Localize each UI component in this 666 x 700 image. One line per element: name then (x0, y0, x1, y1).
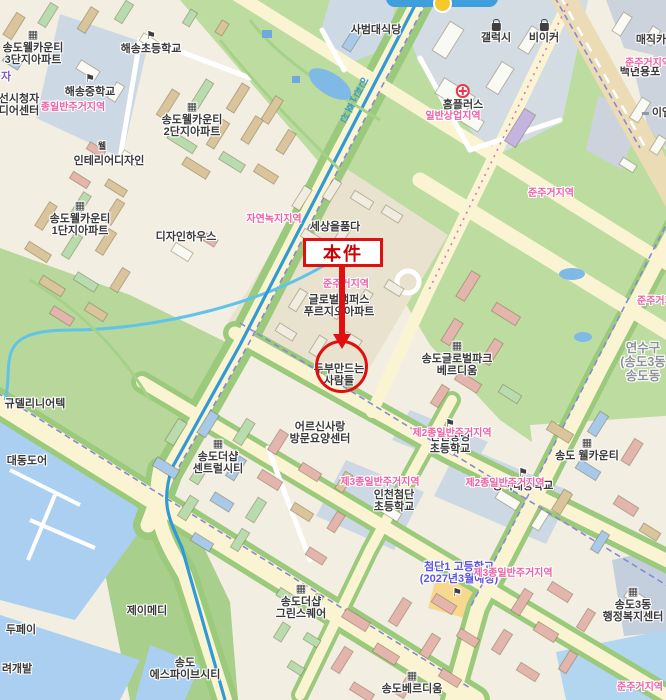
map-label-poi[interactable]: 송도웰카운티3단지아파트 (3, 30, 64, 67)
map-label-poi[interactable]: 송도 웰카운티 (555, 438, 619, 462)
map-label-poi[interactable]: 려개발 (2, 663, 32, 675)
map-label-zone: 종일반주거지역 (41, 102, 105, 113)
map-label-poi[interactable]: 선시청자디어센터 (0, 93, 39, 118)
map-label-zone: 일반상업지역 (425, 111, 480, 122)
bag-icon (492, 23, 501, 31)
building-icon (50, 201, 111, 212)
map-label-poi[interactable]: 비이커 (529, 23, 559, 44)
map-label-transit: 인천1호선 (335, 74, 369, 124)
map-label-poi[interactable]: 규델리니어텍 (5, 398, 66, 410)
map-label-zone: 제2종일반주거지역 (465, 478, 544, 489)
map-label-poi[interactable] (452, 588, 462, 600)
map-label-zone: 제3종일반주거지역 (340, 477, 419, 488)
map-label-poi[interactable]: 제이메디 (127, 605, 167, 617)
building-icon (422, 341, 493, 352)
map-label-poi[interactable]: 송도베르디움 (382, 671, 443, 695)
annotation-target-box: 本件 (303, 238, 383, 267)
map-label-zone: 준주거지역 (617, 682, 663, 693)
map-label-district: 연수구(송도3동송도동 (620, 341, 666, 383)
homeplus-icon (456, 84, 470, 98)
school-icon (65, 74, 116, 85)
building-icon (193, 439, 244, 450)
map-label-fragment: 자 (1, 71, 11, 83)
map-label-zone: 제2종일반주거지역 (412, 428, 491, 439)
building-icon (162, 102, 223, 113)
map-label-poi[interactable]: 디자인하우스 (156, 231, 217, 243)
building-icon (276, 584, 327, 595)
map-label-zone: 준주거지역 (323, 279, 369, 290)
building-icon (3, 30, 64, 41)
map-label-poi[interactable]: 인천첨단초등학교 (374, 489, 414, 514)
map-label-zone: 준주거지역 (528, 188, 574, 199)
map-label-poi[interactable]: 송도글로벌파크베르디움 (422, 341, 493, 378)
map-label-poi[interactable]: 어르신사랑방문요양센터 (290, 421, 351, 446)
annotation-arrow-stem (339, 267, 345, 335)
map-label-zone: 자연녹지지역 (246, 214, 301, 225)
map-label-zone: 준주거지역 (637, 296, 666, 307)
map-label-zone: 제3종일반주거지역 (473, 568, 552, 579)
map-label-poi[interactable]: 송도더샵센트럴시티 (193, 439, 244, 476)
annotation-arrow-head (333, 334, 351, 349)
map-label-poi[interactable]: 두페이 (6, 624, 36, 636)
map-label-poi[interactable]: 대동도어 (7, 455, 47, 467)
map-label-poi[interactable]: 사범대식당 (351, 24, 402, 36)
map-label-poi[interactable]: 홈플러스 (443, 84, 483, 111)
building-icon (555, 438, 619, 449)
school-icon (121, 31, 182, 42)
building-icon (382, 671, 443, 682)
map-label-poi[interactable]: 매직카 (636, 34, 666, 46)
school-icon (452, 588, 462, 599)
map-label-zone: 준주거지역 (625, 58, 666, 69)
map-label-poi[interactable]: 송도웰카운티1단지아파트 (50, 201, 111, 238)
map-label-poi[interactable]: 송도웰카운티2단지아파트 (162, 102, 223, 139)
map-label-poi[interactable]: 인테리어디자인 (74, 155, 145, 167)
map-label-poi[interactable]: 웰 (98, 141, 106, 151)
dash-icon (642, 112, 649, 115)
building-icon (603, 587, 664, 598)
map-label-poi[interactable]: 해송초등학교 (121, 31, 182, 55)
map-label-poi[interactable]: 갤럭시 (481, 23, 511, 44)
map-label-poi[interactable]: 세상을품다 (310, 221, 361, 233)
map-label-poi[interactable]: 송도더샵그린스퀘어 (276, 584, 327, 621)
map-label-poi[interactable]: 이엘 (642, 107, 666, 119)
map-label-poi[interactable]: 송도에스파이브시티 (150, 657, 221, 682)
map-viewport[interactable]: 송도웰카운티3단지아파트해송초등학교해송중학교사범대식당갤럭시비이커홈플러스매직… (0, 0, 666, 700)
bag-icon (540, 23, 549, 31)
map-label-poi[interactable]: 해송중학교 (65, 74, 116, 98)
annotation-box-label: 本件 (323, 240, 363, 266)
map-label-poi[interactable]: 송도3동행정복지센터 (603, 587, 664, 624)
